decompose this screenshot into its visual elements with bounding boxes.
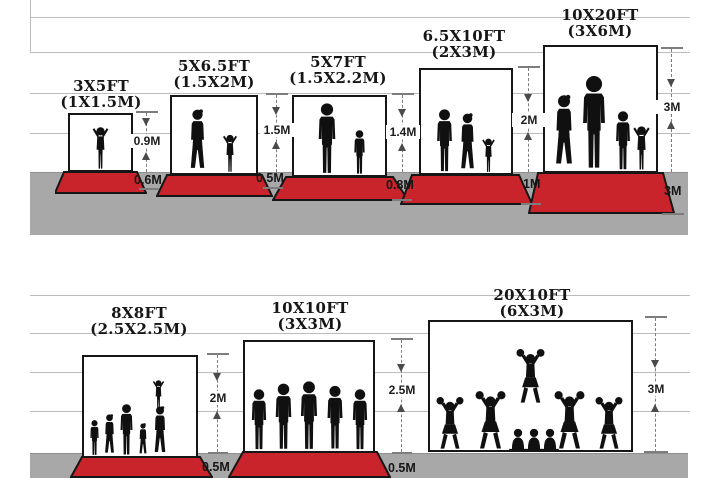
dimension-top-tick — [392, 93, 414, 95]
wall-height-label: 1.5M — [260, 123, 294, 137]
size-comparison-diagram: 3X5FT (1X1.5M) 0.9M 0.6M 5X6.5FT (1.5X2M… — [0, 0, 720, 478]
silhouette-girl — [140, 423, 147, 453]
arrow-down-icon — [524, 94, 532, 102]
height-dimension: 2M — [528, 68, 529, 172]
silhouette-sitting-figure — [509, 429, 527, 450]
size-m-label: (6X3M) — [442, 303, 622, 319]
silhouette-man — [276, 384, 292, 449]
silhouette-woman — [461, 113, 474, 168]
arrow-down-icon — [397, 364, 405, 372]
height-dimension: 2M — [217, 355, 218, 452]
floor-depth-label: 0.8M — [386, 178, 414, 192]
panel-title: 20X10FT (6X3M) — [442, 287, 622, 319]
silhouette-woman — [155, 406, 166, 452]
size-m-label: (2X3M) — [374, 44, 554, 60]
silhouette-man — [353, 389, 367, 449]
arrow-down-icon — [667, 79, 675, 87]
left-axis-tick — [30, 0, 31, 53]
silhouette-boy — [354, 130, 364, 173]
silhouette-group — [70, 115, 131, 170]
dimension-top-tick — [661, 47, 683, 49]
silhouette-child — [223, 135, 237, 172]
wall-height-label: 2M — [512, 113, 546, 127]
dimension-top-tick — [391, 338, 413, 340]
silhouette-man — [583, 76, 605, 168]
arrow-down-icon — [142, 118, 150, 126]
silhouette-group — [172, 97, 256, 173]
panel-title: 10X20FT (3X6M) — [510, 7, 690, 39]
red-carpet — [400, 174, 533, 205]
arrow-down-icon — [213, 373, 221, 381]
size-ft-label: 10X10FT — [220, 300, 400, 316]
silhouette-group — [430, 322, 631, 450]
silhouette-woman — [191, 109, 204, 168]
silhouette-man — [301, 381, 317, 449]
arrow-down-icon — [651, 360, 659, 368]
size-m-label: (3X6M) — [510, 23, 690, 39]
silhouette-cheerleader-top — [517, 349, 545, 403]
dimension-top-tick — [518, 66, 540, 68]
panel-title: 10X10FT (3X3M) — [220, 300, 400, 332]
panel-title: 8X8FT (2.5X2.5M) — [49, 305, 229, 337]
floor-depth-tick — [392, 199, 412, 201]
floor-depth-label: 0.5M — [202, 460, 230, 474]
size-ft-label: 10X20FT — [510, 7, 690, 23]
silhouette-man — [252, 389, 266, 449]
silhouette-cheerleader — [555, 391, 585, 448]
silhouette-cheerleader — [437, 397, 464, 449]
wall-height-label: 2M — [201, 391, 235, 405]
silhouette-child — [482, 139, 495, 172]
silhouette-group — [294, 97, 385, 175]
silhouette-child-on-shoulders — [153, 380, 164, 410]
dimension-top-tick — [645, 316, 667, 318]
silhouette-group — [84, 357, 196, 456]
size-ft-label: 20X10FT — [442, 287, 622, 303]
floor-depth-label: 0.5M — [256, 171, 284, 185]
floor-depth-tick — [263, 187, 283, 189]
dimension-top-tick — [207, 353, 229, 355]
floor-depth-tick — [521, 203, 541, 205]
wall-height-label: 0.9M — [130, 134, 164, 148]
silhouette-child — [93, 127, 109, 168]
floor-depth-tick — [392, 452, 412, 454]
silhouette-cheerleader — [596, 397, 623, 449]
arrow-up-icon — [213, 411, 221, 419]
silhouette-group — [545, 47, 656, 171]
size-m-label: (3X3M) — [220, 316, 400, 332]
dimension-bottom-tick — [644, 451, 668, 453]
floor-depth-tick — [662, 213, 684, 215]
size-m-label: (2.5X2.5M) — [49, 321, 229, 337]
wall-height-label: 2.5M — [385, 383, 419, 397]
red-carpet — [70, 456, 213, 478]
size-m-label: (1.5X2.2M) — [248, 70, 428, 86]
height-dimension: 3M — [655, 318, 656, 452]
height-dimension: 1.4M — [402, 95, 403, 172]
arrow-up-icon — [397, 404, 405, 412]
size-ft-label: 8X8FT — [49, 305, 229, 321]
red-carpet — [528, 172, 675, 214]
silhouette-man — [437, 109, 452, 171]
wall-height-label: 3M — [639, 382, 673, 396]
red-carpet — [228, 451, 391, 478]
wall-height-label: 1.4M — [386, 125, 420, 139]
arrow-up-icon — [667, 121, 675, 129]
silhouette-cheerleader — [476, 391, 506, 448]
silhouette-girl — [105, 414, 114, 452]
silhouette-woman — [556, 95, 572, 164]
silhouette-boy — [90, 420, 98, 455]
arrow-up-icon — [272, 141, 280, 149]
size-m-label: (1X1.5M) — [11, 94, 191, 110]
silhouette-group — [245, 342, 373, 451]
arrow-up-icon — [524, 132, 532, 140]
floor-depth-tick — [208, 452, 228, 454]
floor-depth-label: 0.6M — [134, 173, 162, 187]
height-dimension: 1.5M — [276, 95, 277, 172]
floor-depth-tick — [139, 188, 159, 190]
floor-depth-label: 1M — [523, 177, 540, 191]
silhouette-sitting-figure — [541, 429, 559, 450]
arrow-up-icon — [398, 143, 406, 151]
height-dimension: 3M — [671, 49, 672, 172]
arrow-up-icon — [651, 404, 659, 412]
floor-depth-label: 0.5M — [388, 461, 416, 475]
silhouette-man — [319, 103, 336, 172]
silhouette-boy — [616, 111, 630, 169]
dimension-top-tick — [136, 111, 158, 113]
height-dimension: 2.5M — [401, 340, 402, 452]
silhouette-sitting-figure — [525, 429, 543, 450]
arrow-down-icon — [398, 109, 406, 117]
dimension-top-tick — [266, 93, 288, 95]
silhouette-man — [121, 404, 133, 454]
wall-height-label: 3M — [655, 100, 689, 114]
silhouette-group — [421, 70, 511, 173]
silhouette-man — [328, 386, 343, 449]
arrow-up-icon — [142, 152, 150, 160]
height-dimension: 0.9M — [146, 113, 147, 172]
arrow-down-icon — [272, 107, 280, 115]
floor-depth-label: 3M — [664, 184, 681, 198]
silhouette-child — [633, 126, 649, 169]
